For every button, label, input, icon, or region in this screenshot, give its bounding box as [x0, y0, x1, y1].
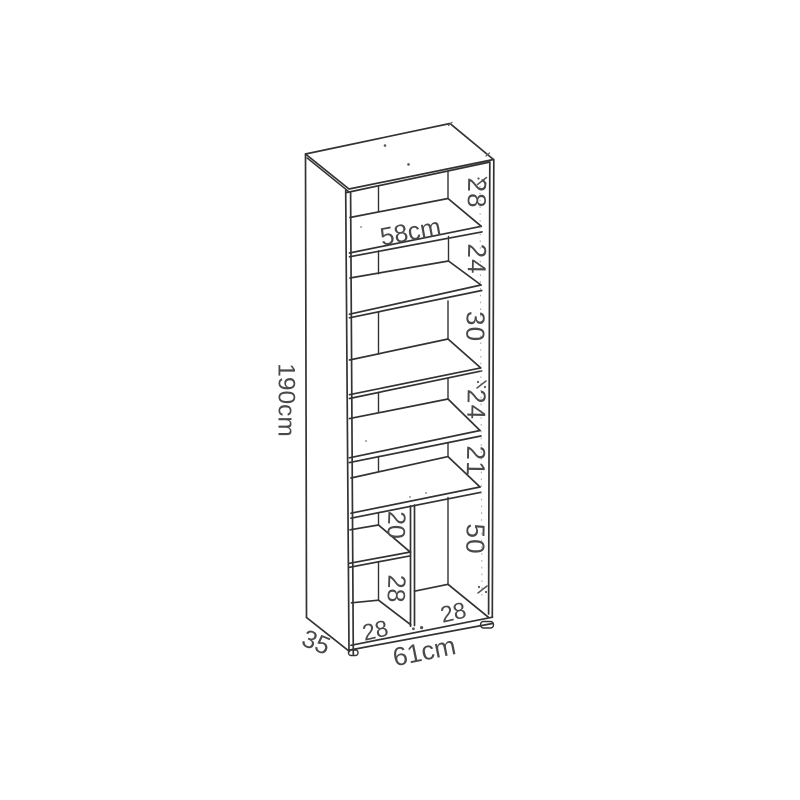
svg-text:30: 30	[460, 311, 491, 343]
svg-text:24: 24	[462, 243, 493, 275]
svg-text:20: 20	[382, 510, 411, 539]
svg-text:21: 21	[461, 445, 492, 477]
svg-text:190cm: 190cm	[273, 363, 300, 437]
svg-text:24: 24	[461, 389, 492, 421]
svg-text:28: 28	[462, 177, 493, 209]
svg-text:28: 28	[382, 574, 411, 603]
svg-text:50: 50	[460, 523, 491, 555]
